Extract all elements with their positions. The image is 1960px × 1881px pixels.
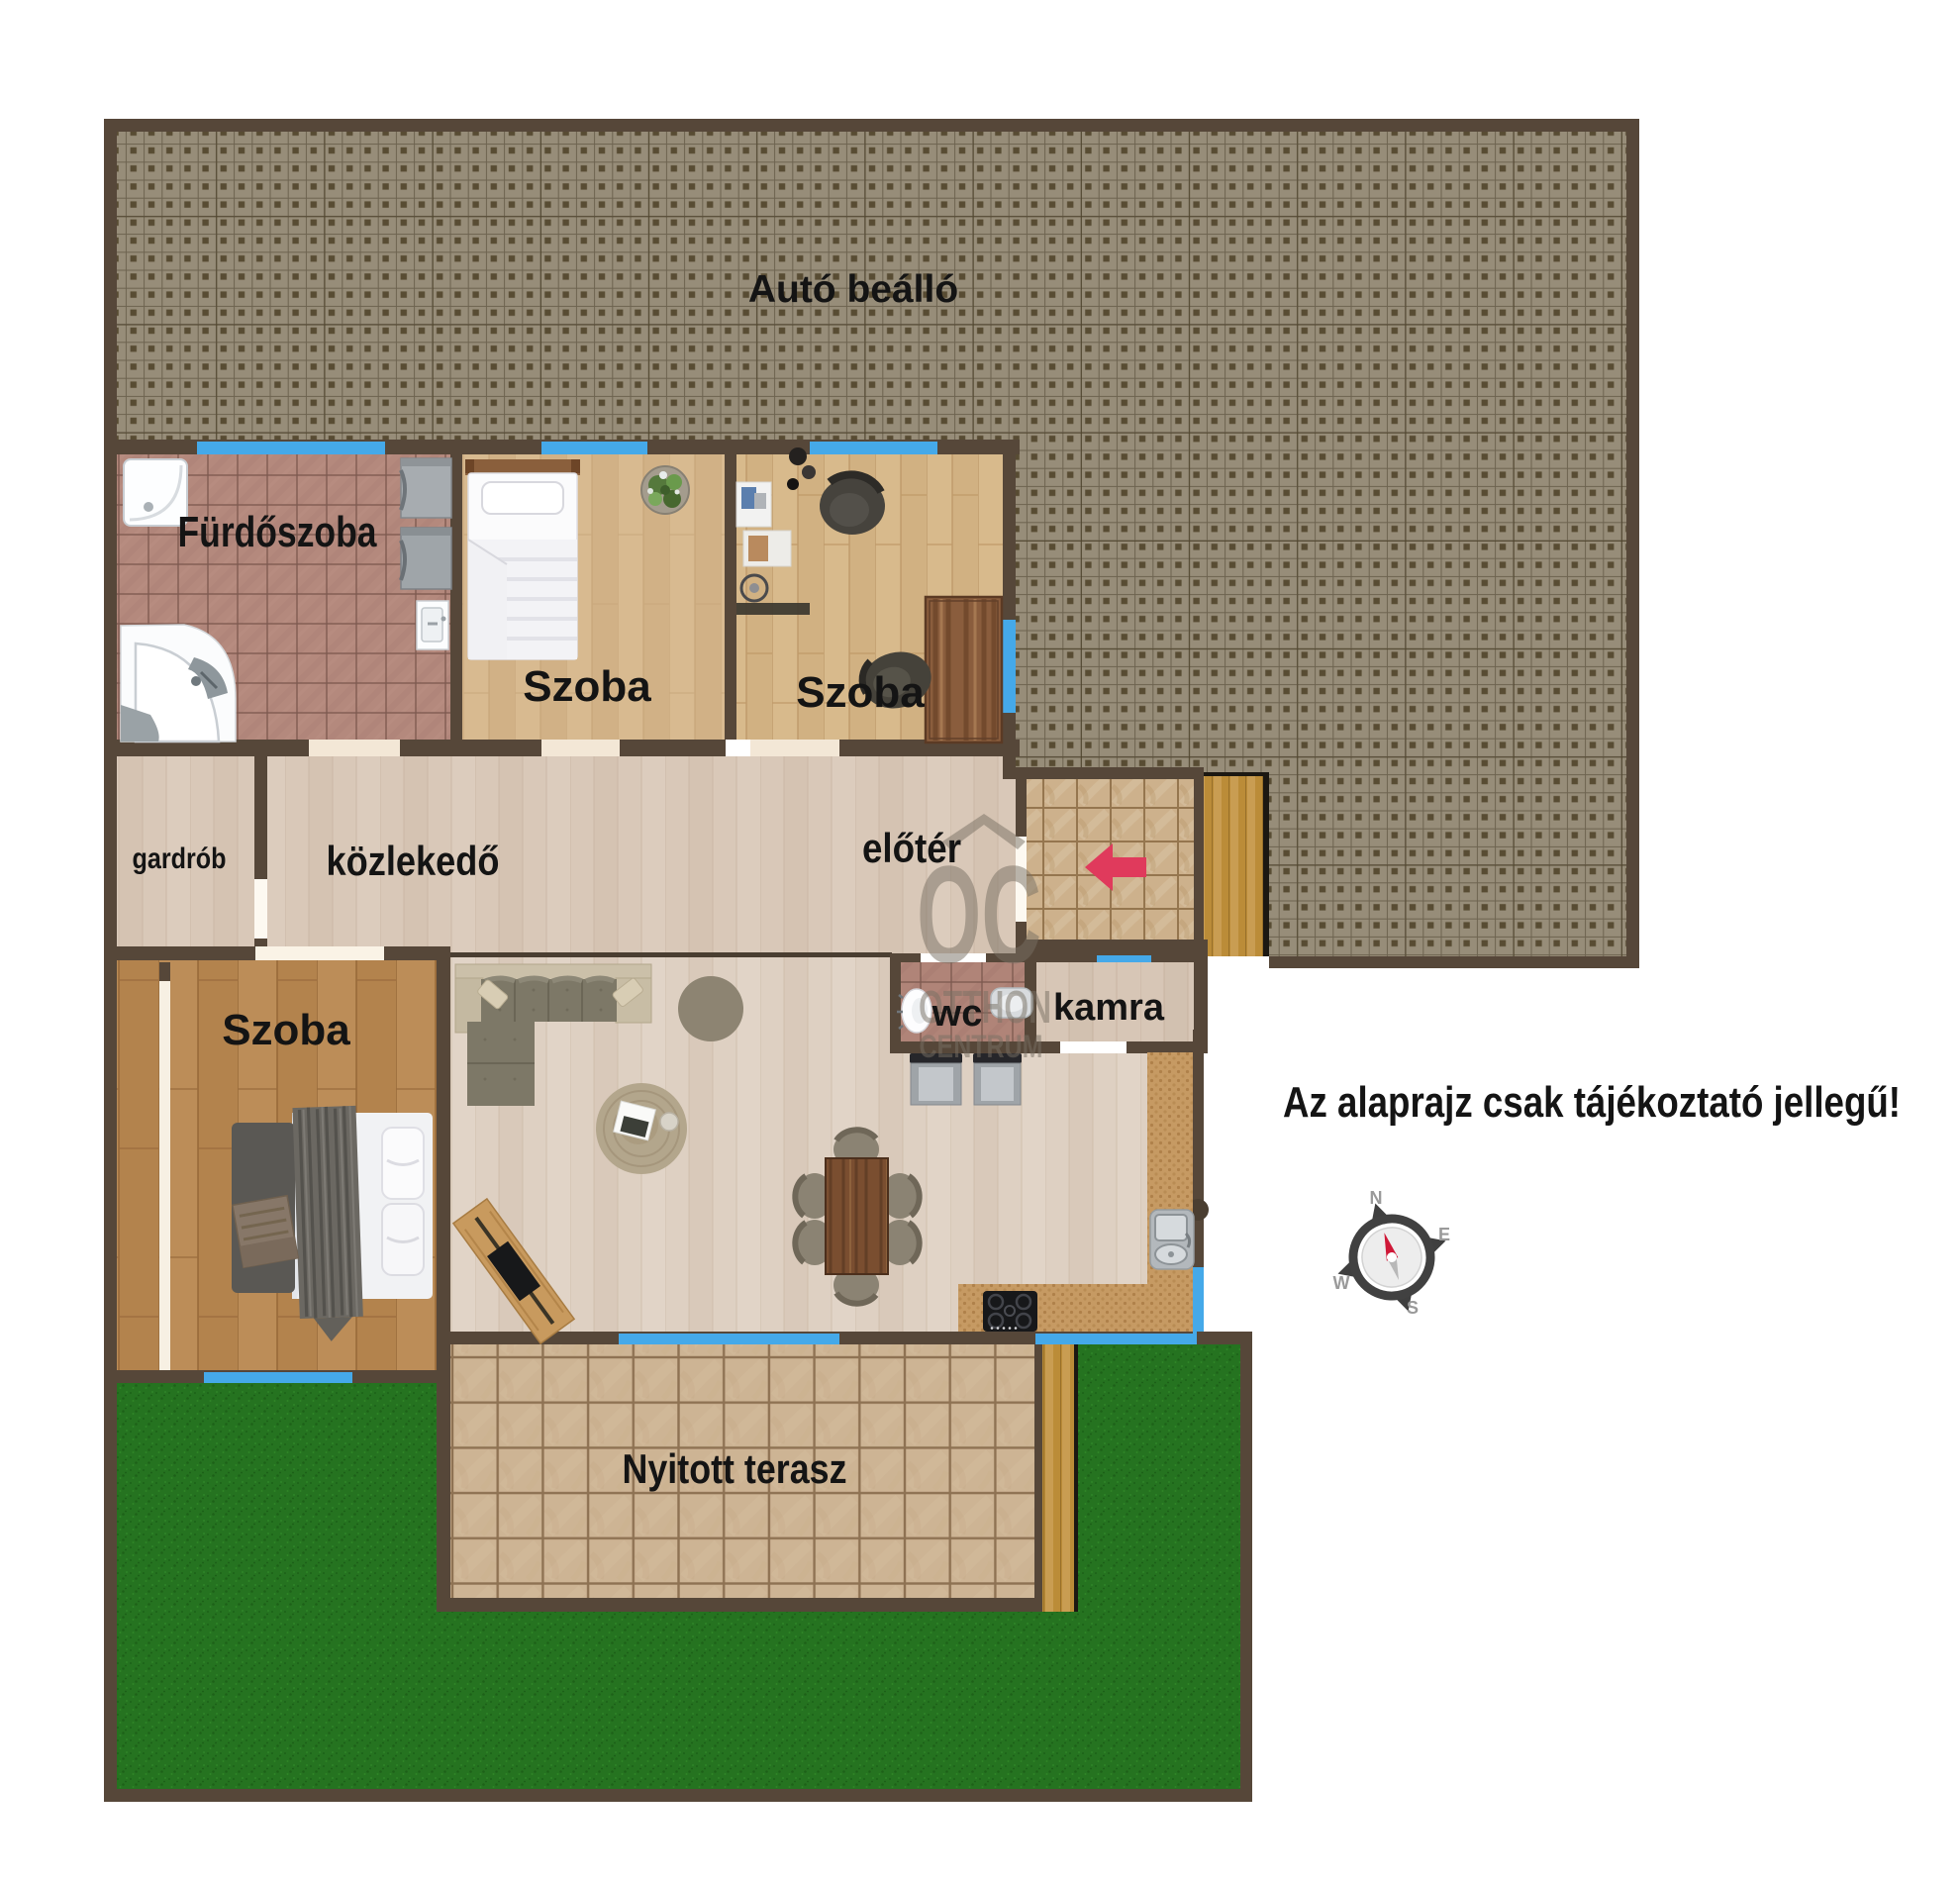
svg-text:W: W — [1333, 1273, 1350, 1293]
svg-text:előtér: előtér — [862, 825, 961, 871]
svg-text:Fürdőszoba: Fürdőszoba — [178, 508, 377, 556]
svg-text:Szoba: Szoba — [796, 668, 925, 717]
svg-text:Az alaprajz csak tájékoztató j: Az alaprajz csak tájékoztató jellegű! — [1283, 1078, 1901, 1127]
svg-text:S: S — [1407, 1298, 1419, 1318]
svg-text:N: N — [1370, 1188, 1383, 1208]
svg-text:wc: wc — [931, 993, 983, 1035]
svg-text:Szoba: Szoba — [222, 1006, 350, 1054]
svg-text:gardrób: gardrób — [133, 842, 227, 875]
svg-text:Autó beálló: Autó beálló — [748, 268, 958, 311]
svg-text:E: E — [1438, 1225, 1450, 1244]
svg-text:Nyitott terasz: Nyitott terasz — [623, 1445, 847, 1492]
svg-text:közlekedő: közlekedő — [327, 838, 500, 884]
svg-text:kamra: kamra — [1053, 987, 1165, 1029]
svg-text:Szoba: Szoba — [523, 662, 651, 711]
